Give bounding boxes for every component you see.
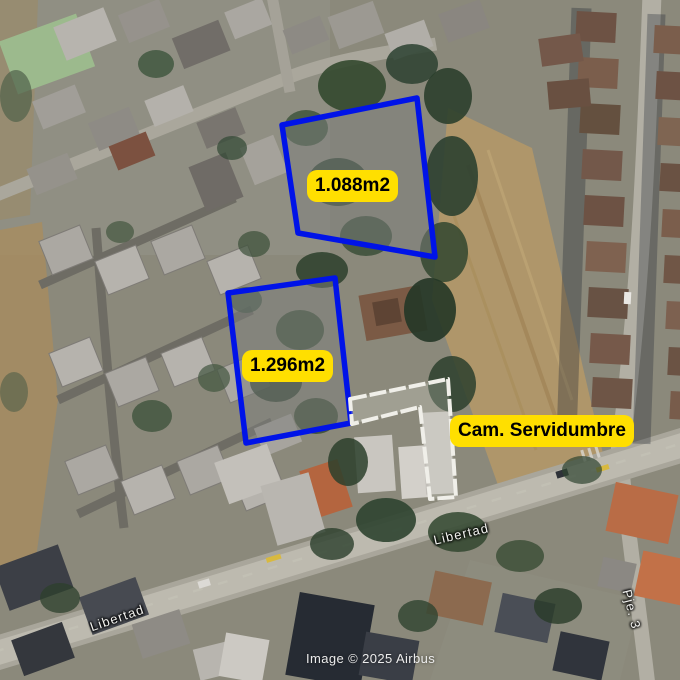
annotation-shapes — [0, 0, 680, 680]
parcel-1296-area-label: 1.296m2 — [242, 350, 333, 382]
easement-corridor-outline[interactable] — [350, 379, 456, 499]
easement-label: Cam. Servidumbre — [450, 415, 634, 447]
map-viewport: 1.088m2 1.296m2 Cam. Servidumbre Liberta… — [0, 0, 680, 680]
parcel-1088-area-label: 1.088m2 — [307, 170, 398, 202]
imagery-attribution: Image © 2025 Airbus — [306, 651, 435, 666]
